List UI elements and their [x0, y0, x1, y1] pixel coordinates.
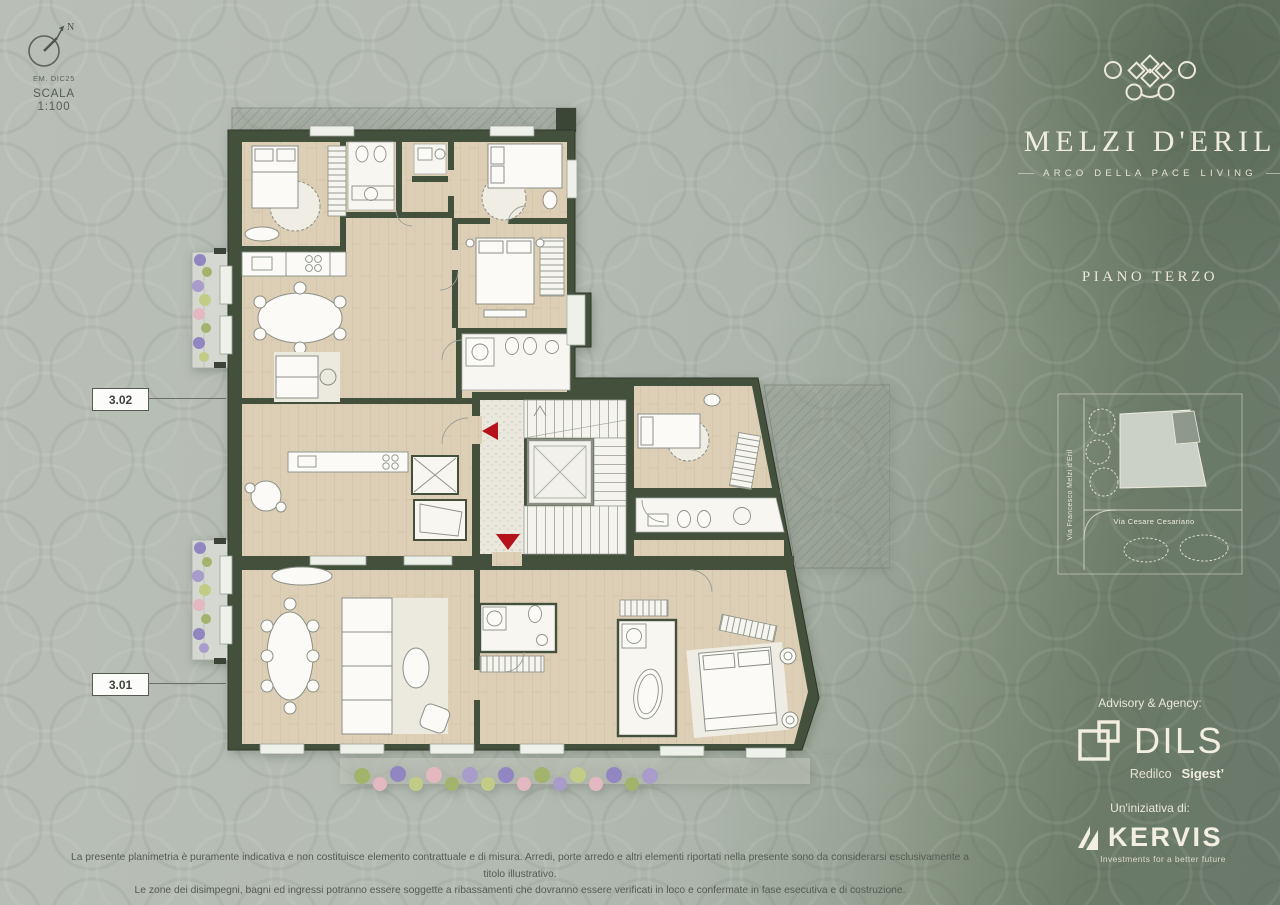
right-panel: MELZI D'ERIL ARCO DELLA PACE LIVING PIAN…	[1018, 0, 1280, 864]
disclaimer-line-2: Le zone dei disimpegni, bagni ed ingress…	[60, 883, 980, 900]
advisory-heading: Advisory & Agency:	[1018, 696, 1280, 710]
street-label-horizontal: Via Cesare Cesariano	[1113, 517, 1194, 526]
kervis-wordmark: KERVIS	[1108, 822, 1223, 853]
floor-label: PIANO TERZO	[1018, 269, 1280, 286]
floor-plan	[190, 100, 890, 805]
stair-core	[468, 392, 634, 566]
tagline-rule-right	[1266, 173, 1280, 174]
brand-emblem-icon	[1100, 50, 1200, 108]
disclaimer: La presente planimetria è puramente indi…	[60, 850, 980, 900]
unit-label-3-01: 3.01	[92, 673, 149, 696]
redilco-wordmark: Redilco	[1130, 767, 1172, 781]
garden-bed	[354, 766, 658, 791]
dils-wordmark: DILS	[1134, 720, 1224, 762]
dils-sub-brands: Redilco Sigest’	[1072, 766, 1280, 781]
kervis-tagline: Investments for a better future	[1044, 854, 1280, 864]
site-map: Via Francesco Melzi d'Eril Via Cesare Ce…	[1018, 390, 1280, 578]
dils-squares-icon	[1076, 718, 1122, 764]
scale-note: SCALA 1:100	[14, 88, 94, 114]
compass-icon: N	[22, 18, 82, 74]
emission-note: EM. DIC25	[14, 74, 94, 83]
compass-north-label: N	[67, 22, 74, 33]
brand-tagline-row: ARCO DELLA PACE LIVING	[1018, 168, 1280, 179]
tagline-rule-left	[1018, 173, 1034, 174]
dils-logo: DILS	[1018, 718, 1280, 764]
scale-ratio: 1:100	[14, 101, 94, 114]
scale-label: SCALA	[14, 88, 94, 101]
brand-tagline: ARCO DELLA PACE LIVING	[1043, 168, 1257, 179]
brand-name: MELZI D'ERIL	[1018, 125, 1280, 159]
sigest-wordmark: Sigest’	[1182, 766, 1225, 781]
unit-label-3-02: 3.02	[92, 388, 149, 411]
initiative-heading: Un'iniziativa di:	[1018, 801, 1280, 815]
street-label-vertical: Via Francesco Melzi d'Eril	[1067, 449, 1074, 540]
kervis-arrow-icon	[1077, 824, 1101, 852]
kervis-logo: KERVIS	[1018, 822, 1280, 853]
disclaimer-line-1: La presente planimetria è puramente indi…	[60, 850, 980, 883]
